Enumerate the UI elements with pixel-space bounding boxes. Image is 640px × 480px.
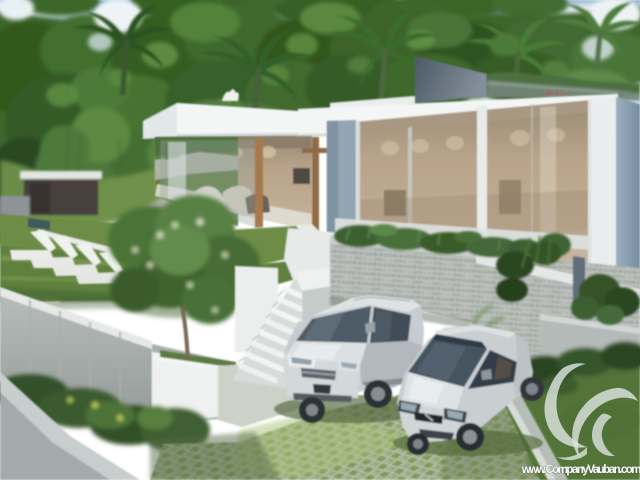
svg-text:www.CompanyVauban.com: www.CompanyVauban.com (521, 464, 640, 476)
